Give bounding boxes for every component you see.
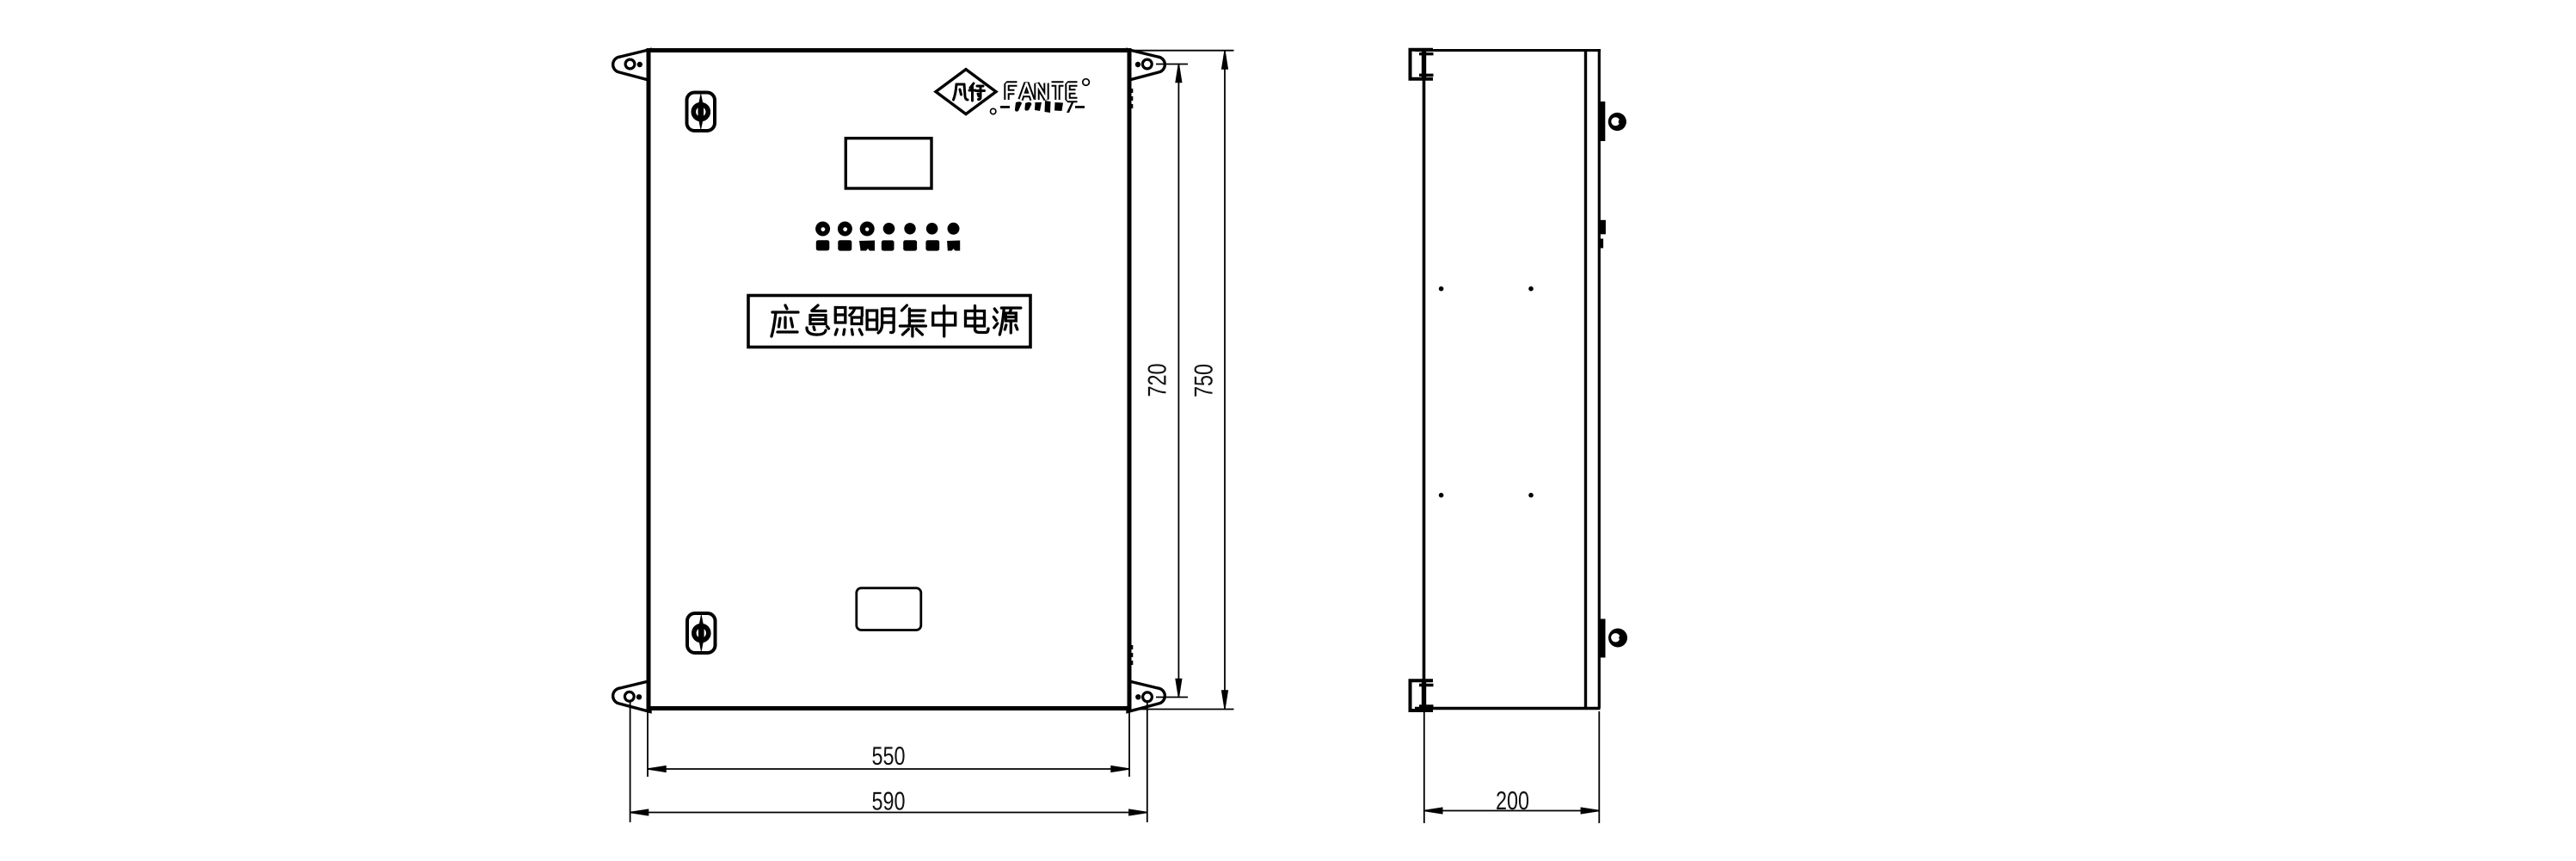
svg-text:720: 720 (1144, 364, 1172, 397)
svg-text:750: 750 (1190, 364, 1219, 397)
svg-text:590: 590 (872, 788, 906, 816)
svg-text:200: 200 (1496, 787, 1529, 815)
svg-text:550: 550 (872, 742, 906, 771)
